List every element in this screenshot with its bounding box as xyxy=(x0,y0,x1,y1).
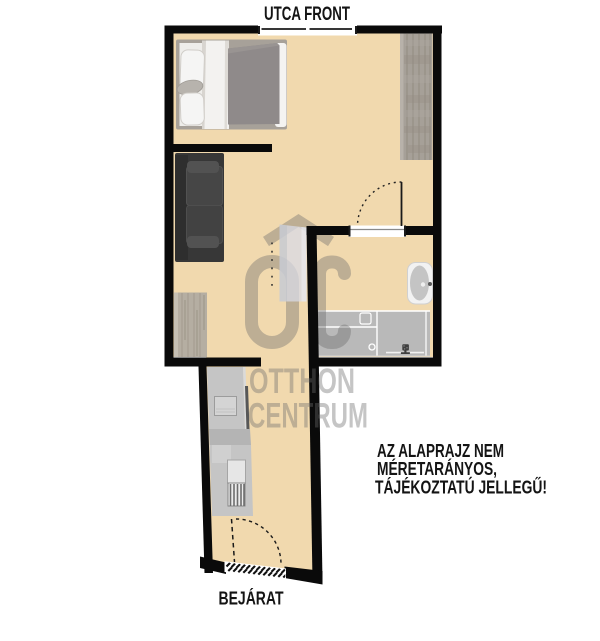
svg-text:UTCA FRONT: UTCA FRONT xyxy=(264,4,350,25)
svg-text:OTTHON: OTTHON xyxy=(249,362,355,401)
svg-text:BEJÁRAT: BEJÁRAT xyxy=(219,588,285,609)
svg-text:CENTRUM: CENTRUM xyxy=(248,397,368,436)
svg-text:TÁJÉKOZTATÚ JELLEGŰ!: TÁJÉKOZTATÚ JELLEGŰ! xyxy=(375,477,547,498)
